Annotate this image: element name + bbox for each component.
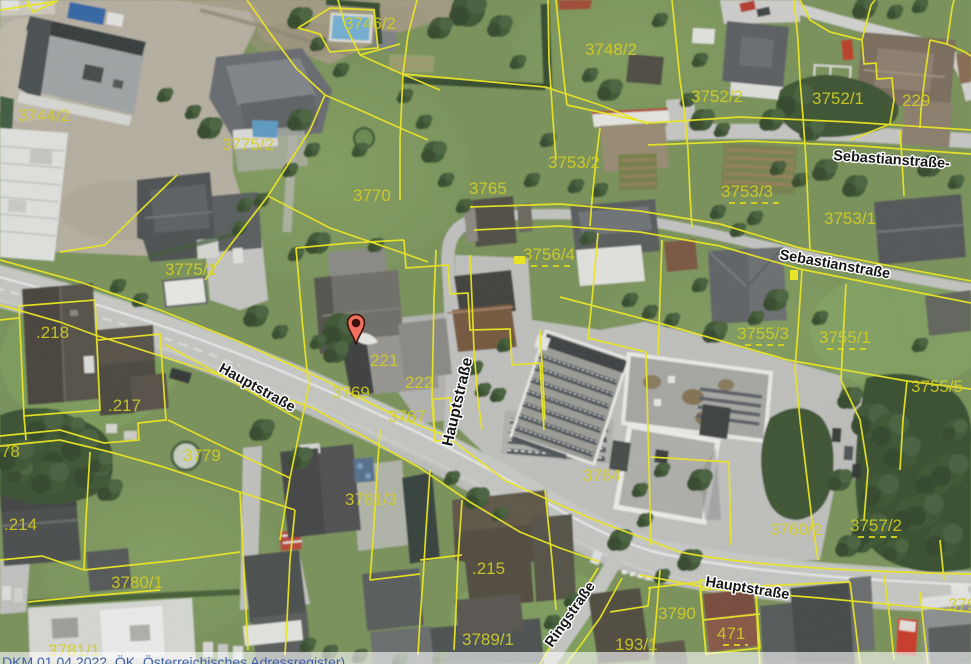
- svg-text:3755/3: 3755/3: [737, 324, 789, 343]
- svg-text:3769: 3769: [332, 383, 370, 402]
- svg-text:DKM 01.04.2022, ÖK, Österreich: DKM 01.04.2022, ÖK, Österreichisches Adr…: [2, 653, 345, 664]
- svg-text:3744/2: 3744/2: [18, 106, 70, 125]
- svg-text:3789/1: 3789/1: [462, 630, 514, 649]
- svg-text:3765: 3765: [469, 179, 507, 198]
- svg-text:3755/5: 3755/5: [911, 377, 963, 396]
- svg-text:.218: .218: [36, 323, 69, 342]
- svg-text:3757/2: 3757/2: [850, 516, 902, 535]
- svg-text:3753/2: 3753/2: [548, 153, 600, 172]
- svg-text:471: 471: [717, 624, 745, 643]
- svg-text:3756/4: 3756/4: [523, 245, 575, 264]
- svg-text:3779: 3779: [183, 446, 221, 465]
- svg-text:3764: 3764: [583, 466, 621, 485]
- svg-text:.214: .214: [4, 515, 37, 534]
- svg-text:3791: 3791: [948, 595, 971, 614]
- svg-text:3753/3: 3753/3: [721, 182, 773, 201]
- svg-text:3746/2: 3746/2: [344, 14, 396, 33]
- svg-text:221: 221: [370, 351, 398, 370]
- svg-text:3778: 3778: [0, 442, 20, 461]
- svg-text:3770: 3770: [353, 186, 391, 205]
- svg-text:3767: 3767: [388, 407, 426, 426]
- svg-text:229: 229: [902, 91, 930, 110]
- svg-text:3775/2: 3775/2: [222, 135, 274, 154]
- svg-text:3760/2: 3760/2: [770, 520, 822, 539]
- svg-text:3781/3: 3781/3: [345, 490, 397, 509]
- svg-text:222: 222: [405, 373, 433, 392]
- svg-text:.217: .217: [108, 396, 141, 415]
- svg-text:3775/1: 3775/1: [165, 260, 217, 279]
- svg-text:3755/1: 3755/1: [819, 328, 871, 347]
- svg-text:.215: .215: [472, 559, 505, 578]
- svg-text:3780/1: 3780/1: [111, 573, 163, 592]
- svg-text:3790: 3790: [658, 604, 696, 623]
- svg-text:3748/2: 3748/2: [585, 40, 637, 59]
- svg-text:3752/1: 3752/1: [812, 89, 864, 108]
- svg-text:3752/2: 3752/2: [691, 87, 743, 106]
- svg-text:193/1: 193/1: [615, 635, 658, 654]
- svg-text:3753/1: 3753/1: [824, 209, 876, 228]
